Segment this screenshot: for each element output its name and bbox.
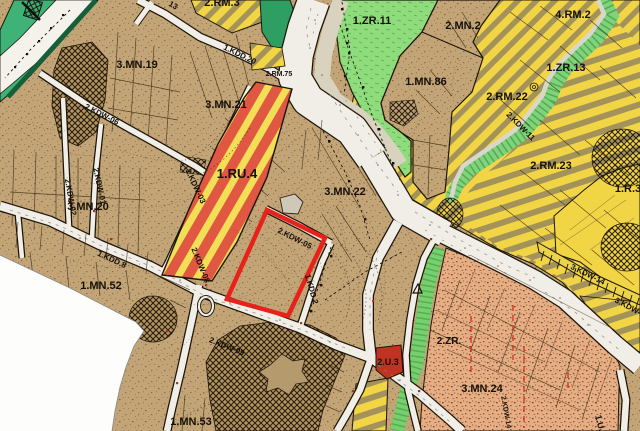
svg-text:1.MN.52: 1.MN.52 — [80, 280, 122, 292]
svg-text:4.RM.2: 4.RM.2 — [555, 9, 590, 21]
svg-text:2.MN.2: 2.MN.2 — [445, 20, 480, 32]
svg-text:2.U.3: 2.U.3 — [377, 357, 399, 367]
svg-text:2.RM.3: 2.RM.3 — [204, 0, 239, 9]
svg-text:1.ZR.11: 1.ZR.11 — [353, 15, 392, 27]
svg-text:2.ZR.: 2.ZR. — [437, 336, 462, 347]
svg-text:3.MN.21: 3.MN.21 — [205, 99, 247, 111]
svg-text:1.MN.53: 1.MN.53 — [170, 416, 212, 428]
svg-text:2.RM.75: 2.RM.75 — [266, 71, 293, 78]
svg-text:3.MN.24: 3.MN.24 — [461, 383, 503, 395]
svg-text:1.MN.86: 1.MN.86 — [405, 76, 447, 88]
svg-text:1.R.3: 1.R.3 — [615, 183, 640, 195]
svg-text:3.MN.19: 3.MN.19 — [116, 59, 158, 71]
svg-text:2.RM.23: 2.RM.23 — [530, 160, 572, 172]
svg-text:2.RM.22: 2.RM.22 — [486, 91, 528, 103]
svg-text:3.MN.22: 3.MN.22 — [324, 186, 366, 198]
svg-text:1.ZR.13: 1.ZR.13 — [546, 62, 585, 74]
svg-text:1.RU.4: 1.RU.4 — [217, 166, 258, 181]
